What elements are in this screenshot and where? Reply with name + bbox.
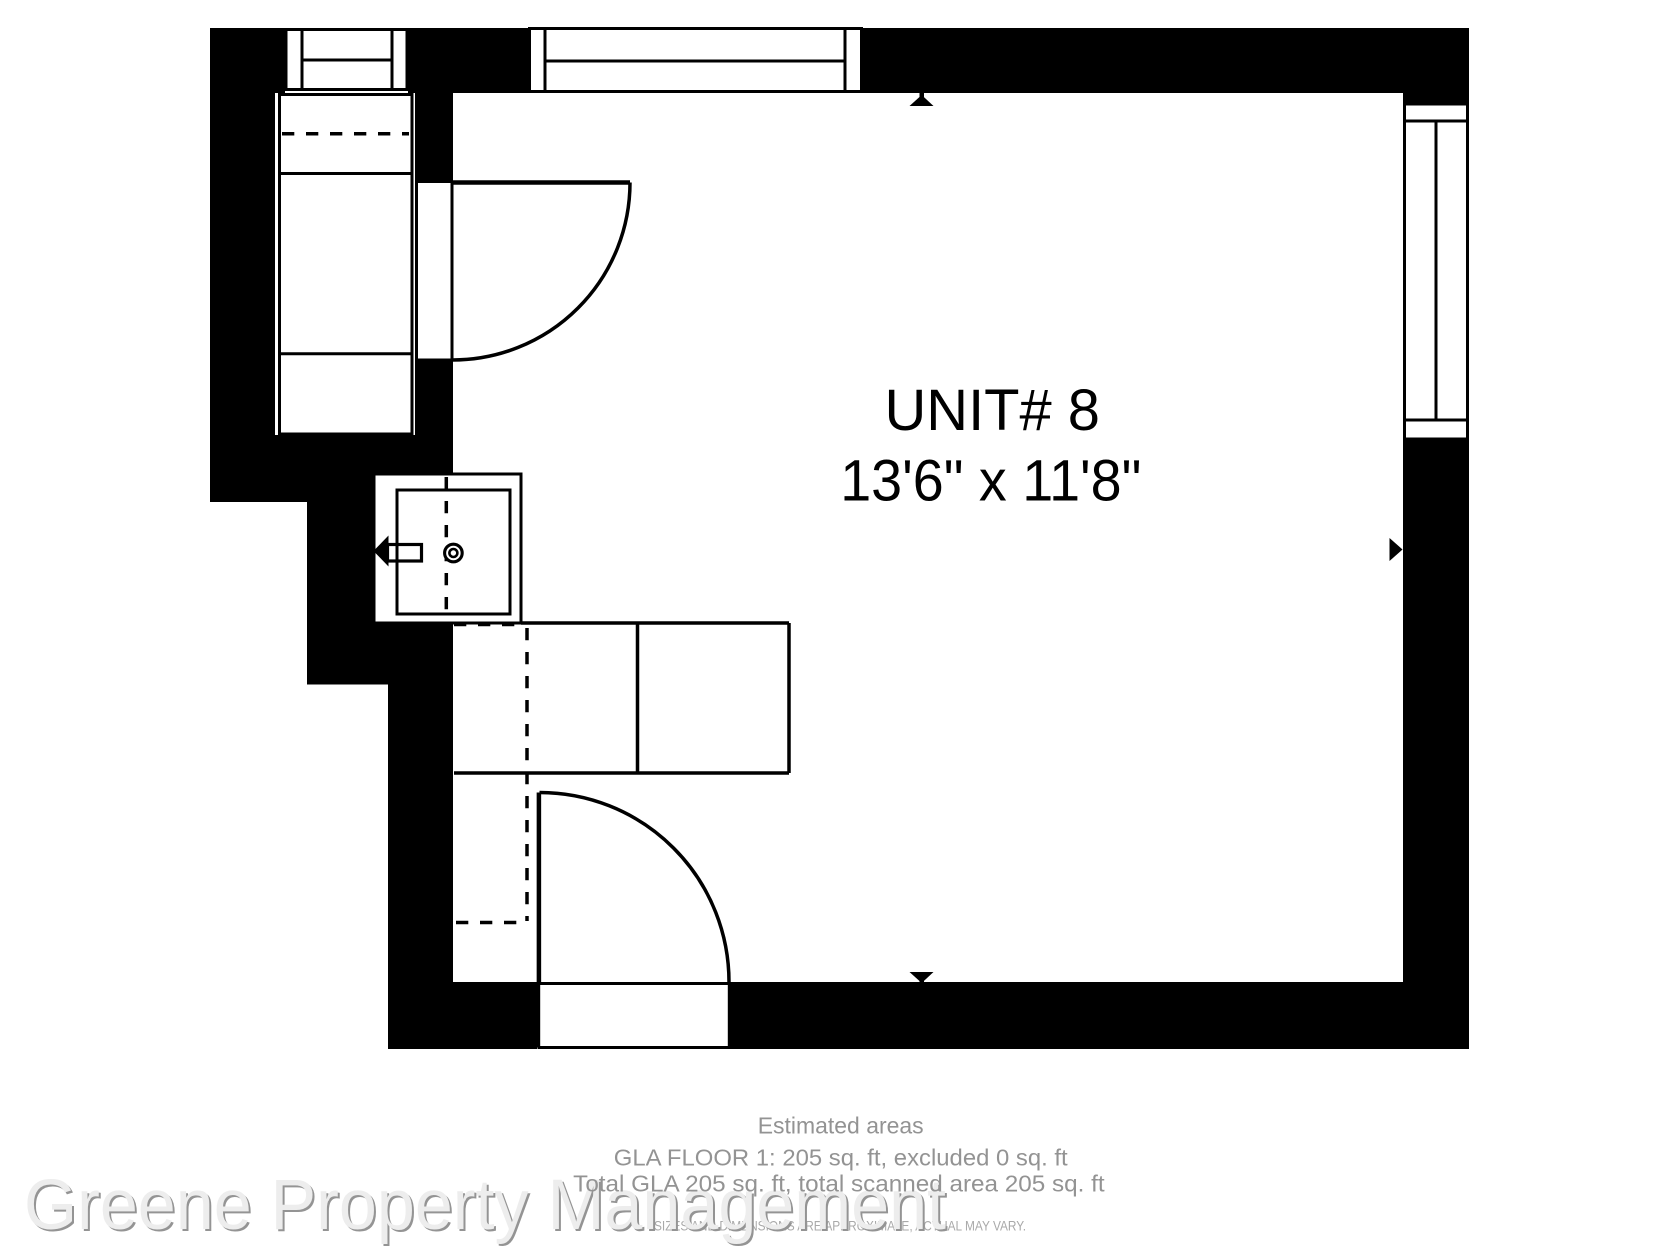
svg-text:13'6" x 11'8": 13'6" x 11'8" [840, 449, 1141, 514]
svg-text:UNIT# 8: UNIT# 8 [885, 378, 1101, 443]
svg-text:GLA FLOOR 1: 205 sq. ft, exclu: GLA FLOOR 1: 205 sq. ft, excluded 0 sq. … [614, 1145, 1069, 1171]
svg-text:Total GLA 205 sq. ft, total sc: Total GLA 205 sq. ft, total scanned area… [573, 1171, 1105, 1197]
svg-text:Estimated areas: Estimated areas [758, 1113, 924, 1139]
